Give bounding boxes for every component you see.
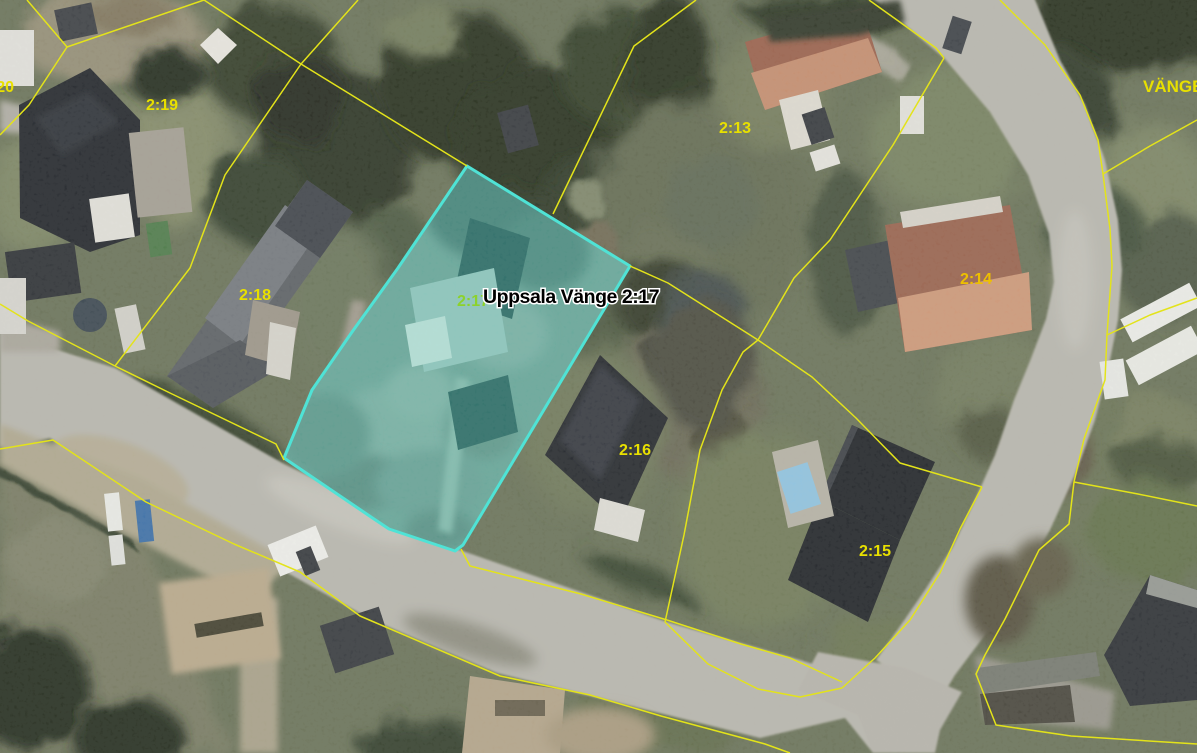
svg-text:2:16: 2:16 bbox=[619, 442, 651, 459]
svg-text:2:14: 2:14 bbox=[960, 271, 992, 288]
svg-text:2:19: 2:19 bbox=[146, 97, 178, 114]
svg-text:VÄNGEN: VÄNGEN bbox=[1143, 77, 1197, 96]
svg-text:2:18: 2:18 bbox=[239, 287, 271, 304]
svg-text:2:15: 2:15 bbox=[859, 543, 891, 560]
svg-text:2:13: 2:13 bbox=[719, 120, 751, 137]
svg-text:2:20: 2:20 bbox=[0, 79, 14, 96]
svg-text:Uppsala Vänge 2:17: Uppsala Vänge 2:17 bbox=[483, 286, 659, 308]
